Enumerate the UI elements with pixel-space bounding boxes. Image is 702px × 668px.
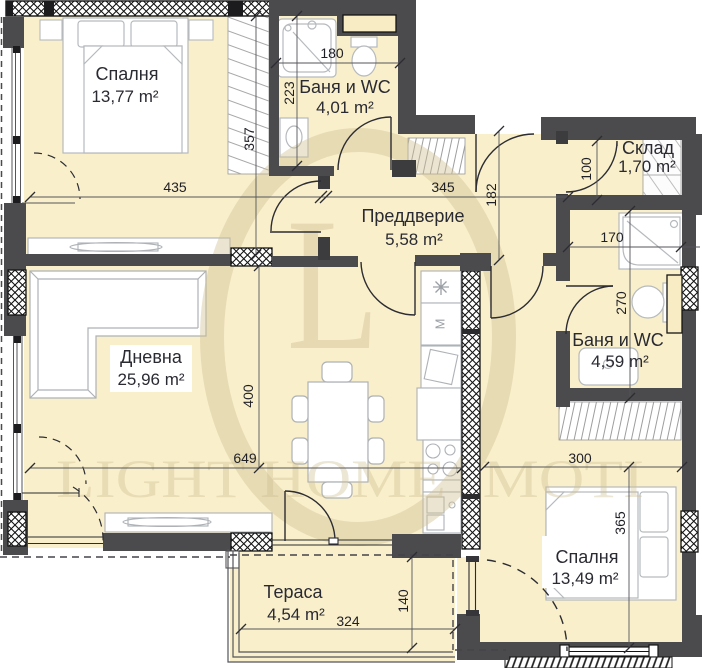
svg-text:1,70 m²: 1,70 m² [618, 157, 676, 176]
svg-text:Спалня: Спалня [96, 64, 159, 84]
svg-text:Баня и WC: Баня и WC [572, 330, 664, 350]
svg-text:649: 649 [233, 450, 257, 466]
svg-text:345: 345 [431, 179, 455, 195]
svg-text:400: 400 [240, 384, 256, 408]
svg-text:Преддверие: Преддверие [361, 206, 464, 226]
svg-text:170: 170 [600, 229, 624, 245]
svg-text:M: M [432, 319, 447, 330]
svg-text:Тераса: Тераса [263, 582, 323, 602]
svg-text:357: 357 [241, 127, 257, 151]
svg-text:4,01 m²: 4,01 m² [316, 98, 374, 117]
svg-text:Баня и WC: Баня и WC [299, 77, 391, 97]
svg-text:300: 300 [568, 450, 592, 466]
svg-text:270: 270 [613, 291, 629, 315]
svg-text:25,96 m²: 25,96 m² [117, 370, 184, 389]
svg-text:182: 182 [483, 183, 499, 207]
svg-text:435: 435 [163, 179, 187, 195]
svg-text:Склад: Склад [622, 138, 675, 158]
svg-text:324: 324 [336, 613, 360, 629]
svg-text:13,77 m²: 13,77 m² [91, 87, 158, 106]
svg-text:223: 223 [281, 81, 297, 105]
svg-text:140: 140 [395, 589, 411, 613]
svg-text:Дневна: Дневна [120, 347, 183, 367]
svg-text:4,54 m²: 4,54 m² [267, 605, 325, 624]
svg-text:13,49 m²: 13,49 m² [551, 569, 618, 588]
svg-text:365: 365 [612, 511, 628, 535]
svg-text:180: 180 [320, 45, 344, 61]
svg-text:Спалня: Спалня [556, 547, 619, 567]
svg-text:100: 100 [578, 157, 594, 181]
svg-text:4,59 m²: 4,59 m² [591, 352, 649, 371]
svg-text:5,58 m²: 5,58 m² [385, 230, 443, 249]
svg-text:LIGHT HOME IMOTI: LIGHT HOME IMOTI [56, 449, 644, 509]
